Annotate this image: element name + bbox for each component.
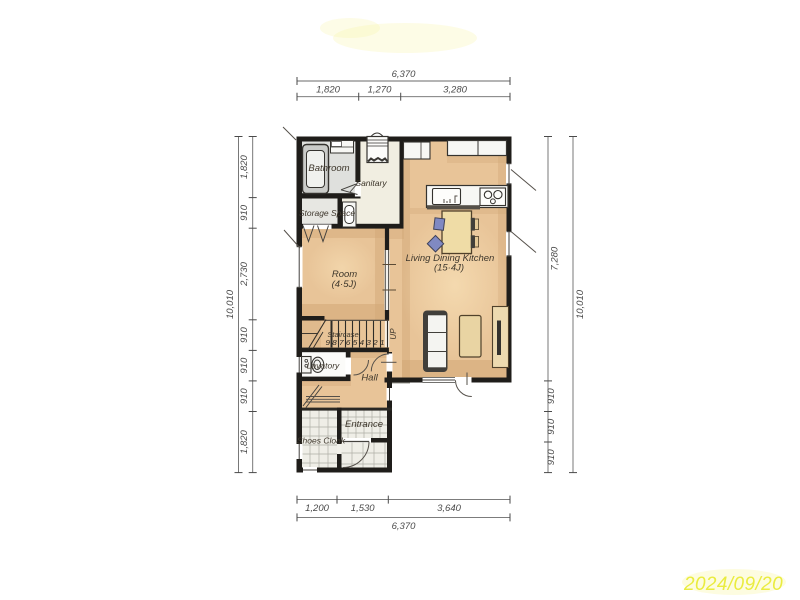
svg-text:3,640: 3,640	[437, 503, 461, 514]
svg-text:1,200: 1,200	[305, 503, 329, 514]
svg-text:2024/09/20: 2024/09/20	[683, 574, 783, 595]
svg-text:UP: UP	[389, 328, 398, 340]
svg-text:910: 910	[546, 449, 557, 466]
svg-text:Storage Space: Storage Space	[299, 208, 356, 218]
svg-text:9 8 7 6 5 4 3 2 1: 9 8 7 6 5 4 3 2 1	[326, 338, 385, 347]
svg-text:10,010: 10,010	[575, 289, 586, 319]
svg-text:(15·4J): (15·4J)	[434, 263, 464, 274]
svg-text:3,280: 3,280	[443, 85, 467, 96]
svg-text:Sanitary: Sanitary	[355, 178, 387, 188]
svg-text:910: 910	[239, 357, 250, 374]
svg-text:1,530: 1,530	[351, 503, 375, 514]
svg-text:1,820: 1,820	[239, 429, 250, 453]
svg-text:Lavatory: Lavatory	[307, 361, 340, 371]
svg-text:Bathroom: Bathroom	[308, 163, 349, 174]
svg-text:1,270: 1,270	[368, 85, 392, 96]
svg-text:Shoes Cloak: Shoes Cloak	[297, 436, 346, 446]
svg-text:7,280: 7,280	[550, 246, 561, 270]
svg-text:910: 910	[239, 388, 250, 405]
svg-text:6,370: 6,370	[392, 521, 416, 532]
svg-text:910: 910	[239, 326, 250, 343]
svg-text:(4·5J): (4·5J)	[332, 279, 357, 290]
svg-text:10,010: 10,010	[225, 289, 236, 319]
svg-text:910: 910	[239, 204, 250, 221]
svg-text:910: 910	[546, 418, 557, 435]
svg-text:Entrance: Entrance	[345, 419, 383, 430]
svg-text:910: 910	[546, 388, 557, 405]
svg-text:Hall: Hall	[361, 373, 378, 384]
svg-text:1,820: 1,820	[316, 85, 340, 96]
svg-text:1,820: 1,820	[239, 154, 250, 178]
svg-text:2,730: 2,730	[239, 261, 250, 286]
svg-text:6,370: 6,370	[392, 69, 416, 80]
